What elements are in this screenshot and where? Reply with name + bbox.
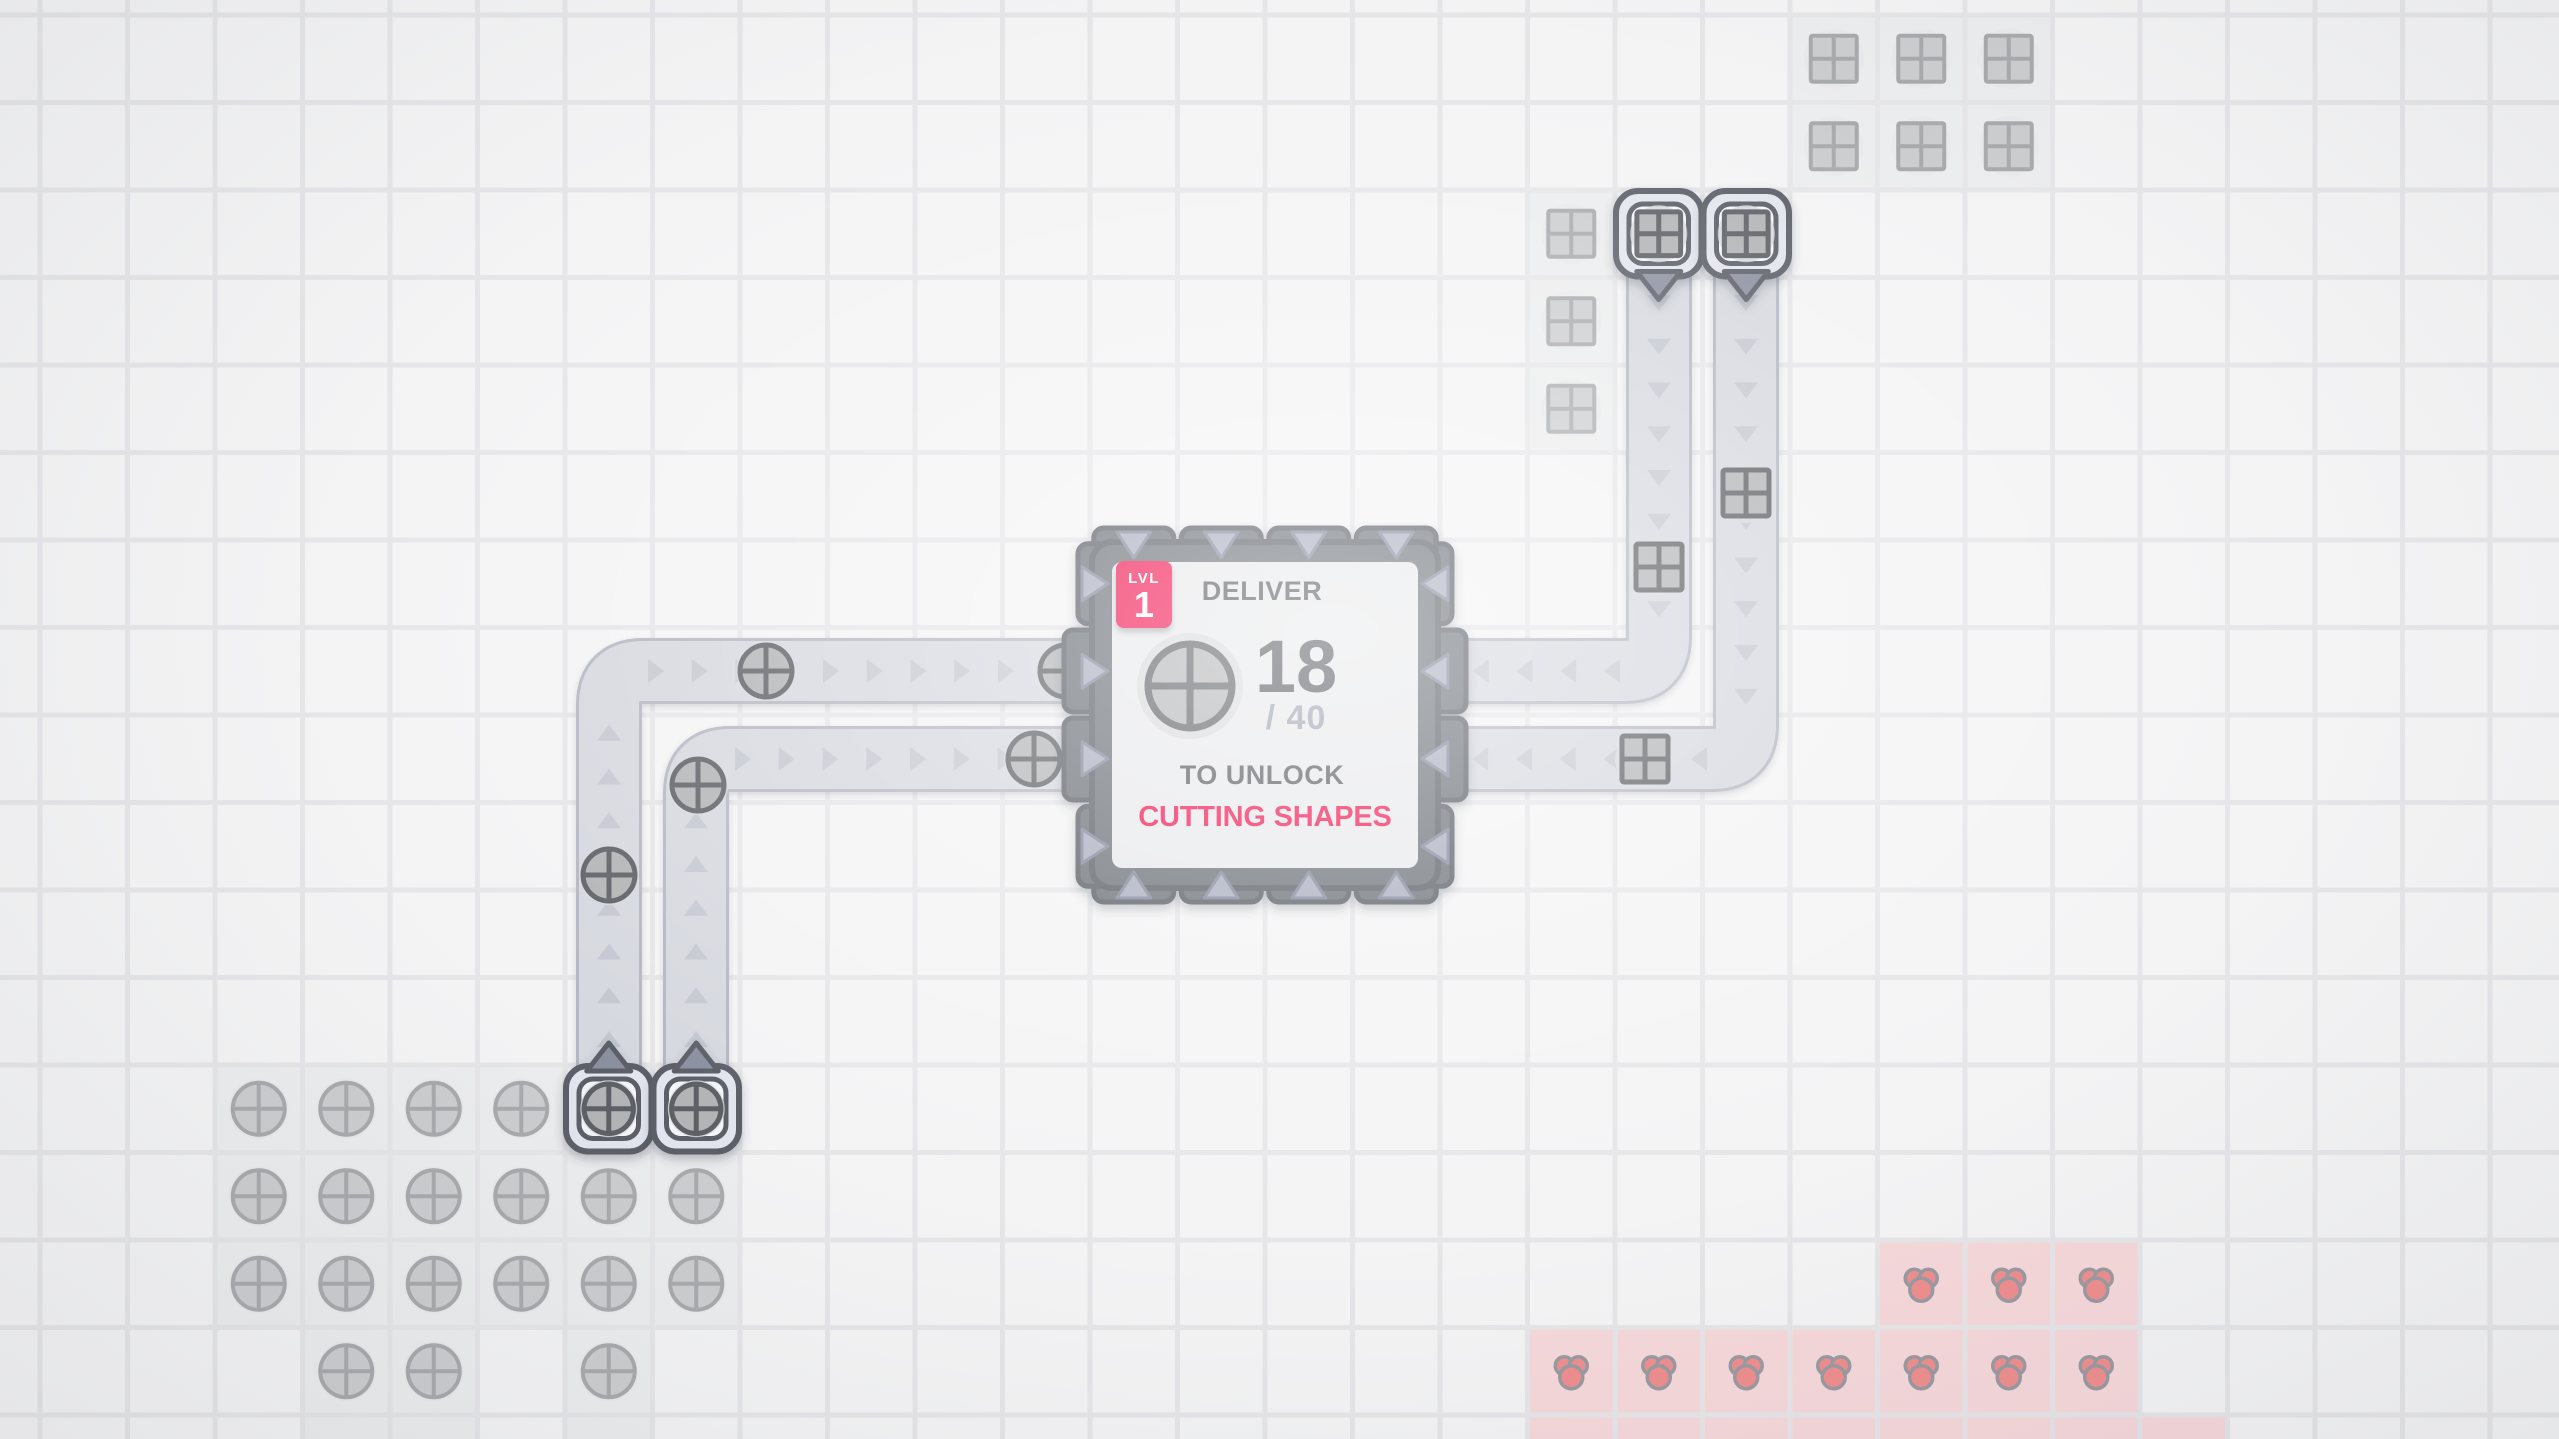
shape-item-red xyxy=(2080,1357,2112,1389)
shape-item-circle xyxy=(316,1166,376,1226)
conveyor-belt[interactable] xyxy=(696,759,1098,1066)
shape-item-circle xyxy=(666,1166,726,1226)
shape-item-circle xyxy=(316,1341,376,1401)
shape-item-circle xyxy=(579,845,639,905)
patch-tile-red xyxy=(1968,1418,2051,1439)
patch-tile-red xyxy=(1793,1418,1876,1439)
shape-item-square xyxy=(1541,291,1601,351)
resource-patch-red xyxy=(1530,1243,2225,1439)
shape-item-red xyxy=(1993,1269,2025,1301)
shape-item-square xyxy=(1718,205,1775,262)
shape-item-circle xyxy=(491,1079,551,1139)
shape-item-circle xyxy=(579,1166,639,1226)
shape-item-circle xyxy=(579,1254,639,1314)
resource-patch-square xyxy=(1793,18,2051,188)
shape-item-circle xyxy=(316,1079,376,1139)
shape-item-square xyxy=(1630,205,1687,262)
shape-item-square xyxy=(1804,29,1864,89)
shape-item-red xyxy=(1555,1357,1587,1389)
patch-tile-circle xyxy=(393,1418,476,1439)
shape-item-square xyxy=(1615,729,1675,789)
shape-item-square xyxy=(1804,116,1864,176)
shape-item-circle xyxy=(404,1341,464,1401)
shape-item-square xyxy=(1891,116,1951,176)
shape-item-square xyxy=(1979,29,2039,89)
shape-item-circle xyxy=(491,1254,551,1314)
shape-item-circle xyxy=(579,1341,639,1401)
shape-item-square xyxy=(1629,537,1689,597)
shape-item-circle xyxy=(580,1080,637,1137)
shape-item-red xyxy=(1905,1269,1937,1301)
patch-tile-red xyxy=(1880,1418,1963,1439)
patch-tile-red xyxy=(2143,1418,2226,1439)
shape-item-circle xyxy=(491,1166,551,1226)
shape-item-circle xyxy=(668,755,728,815)
shape-item-circle xyxy=(404,1079,464,1139)
patch-tile-circle xyxy=(305,1418,388,1439)
shape-item-circle xyxy=(229,1166,289,1226)
patch-tile-red xyxy=(1618,1418,1701,1439)
shape-item-red xyxy=(2080,1269,2112,1301)
shape-item-circle xyxy=(404,1254,464,1314)
game-viewport[interactable]: LVL 1 DELIVER 18 / 40 TO UNLOCK CUTTING … xyxy=(0,0,2559,1439)
hub-building[interactable] xyxy=(1064,528,1466,902)
shape-item-square xyxy=(1979,116,2039,176)
shape-item-red xyxy=(1905,1357,1937,1389)
shape-item-circle xyxy=(668,1080,725,1137)
shape-item-red xyxy=(1730,1357,1762,1389)
shape-item-square xyxy=(1891,29,1951,89)
shape-item-circle xyxy=(1004,729,1064,789)
resource-patch-square xyxy=(1530,193,1613,451)
shape-item-red xyxy=(1643,1357,1675,1389)
patch-tile-red xyxy=(1530,1418,1613,1439)
shape-item-square xyxy=(1716,463,1776,523)
shape-item-square xyxy=(1541,204,1601,264)
shape-item-circle xyxy=(666,1254,726,1314)
patch-tile-red xyxy=(1705,1418,1788,1439)
shape-item-square xyxy=(1541,379,1601,439)
shape-item-circle xyxy=(229,1079,289,1139)
shape-item-red xyxy=(1818,1357,1850,1389)
shape-item-red xyxy=(1993,1357,2025,1389)
patch-tile-red xyxy=(2055,1418,2138,1439)
hub-goal-shape-icon xyxy=(1137,633,1243,739)
patch-tile-circle xyxy=(568,1418,651,1439)
shape-item-circle xyxy=(404,1166,464,1226)
shape-item-circle xyxy=(736,641,796,701)
shape-item-circle xyxy=(229,1254,289,1314)
game-world-canvas[interactable] xyxy=(0,0,2559,1439)
shape-item-circle xyxy=(316,1254,376,1314)
